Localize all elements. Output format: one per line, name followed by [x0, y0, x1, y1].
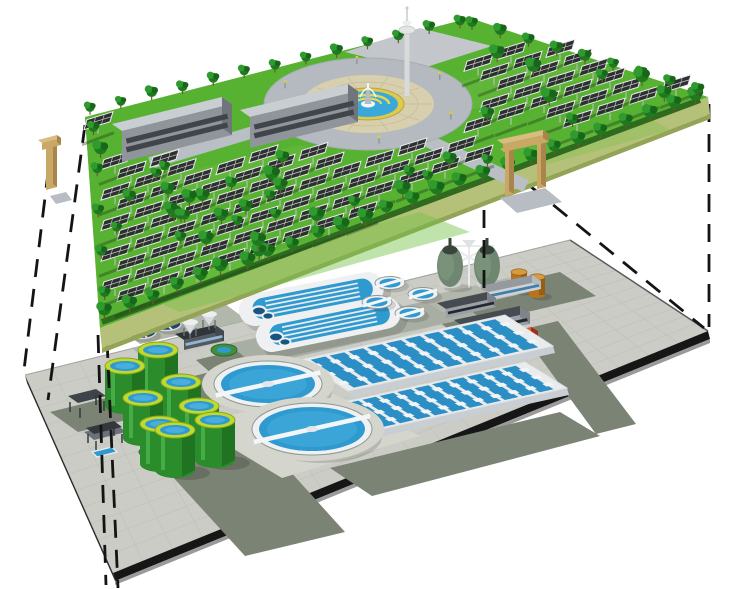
canopy-light — [522, 33, 529, 40]
highlight — [438, 250, 454, 280]
aerator — [263, 313, 274, 320]
canopy-light — [231, 215, 238, 222]
gate-lintel — [38, 135, 61, 150]
canopy-shade — [557, 42, 563, 48]
canopy-shade — [244, 66, 250, 72]
canopy-shade — [165, 162, 170, 167]
side-wall — [53, 140, 57, 187]
canopy-shade — [270, 191, 275, 196]
canopy-shade — [246, 201, 253, 208]
canopy-shade — [101, 142, 109, 150]
canopy-light — [121, 295, 130, 304]
canopy-light — [442, 151, 450, 159]
canopy-light — [92, 203, 99, 210]
canopy-shade — [101, 246, 107, 252]
canopy-light — [596, 69, 603, 76]
canopy-shade — [429, 22, 435, 28]
canopy-shade — [206, 232, 213, 239]
canopy-light — [111, 222, 117, 228]
canopy-shade — [121, 97, 126, 102]
tree — [145, 85, 158, 100]
canopy-shade — [306, 53, 311, 58]
canopy-shade — [642, 70, 650, 78]
canopy-light — [454, 15, 461, 22]
canopy-shade — [613, 59, 619, 65]
canopy-light — [489, 44, 498, 53]
canopy-light — [423, 20, 430, 27]
canopy-light — [607, 57, 614, 64]
canopy-light — [250, 231, 259, 240]
canopy-shade — [276, 209, 281, 214]
canopy-shade — [181, 232, 187, 238]
canopy-light — [96, 302, 105, 311]
scene-illustration — [0, 0, 740, 589]
canopy-light — [428, 180, 437, 189]
canopy-light — [550, 41, 558, 49]
canopy-light — [150, 167, 156, 173]
canopy-light — [238, 65, 245, 72]
canopy-light — [330, 43, 337, 50]
canopy-light — [691, 82, 699, 90]
hub — [306, 426, 318, 432]
water-glint — [171, 379, 191, 385]
canopy-light — [264, 189, 270, 195]
canopy-shade — [258, 233, 266, 241]
canopy-shade — [626, 115, 633, 122]
canopy-shade — [292, 238, 299, 245]
canopy-shade — [459, 174, 466, 181]
canopy-shade — [268, 245, 275, 252]
canopy-light — [159, 161, 165, 167]
canopy-light — [193, 267, 202, 276]
canopy-light — [348, 195, 355, 202]
hopper — [182, 319, 198, 338]
canopy-shade — [472, 18, 478, 24]
canopy-shade — [366, 210, 374, 218]
canopy-shade — [152, 87, 158, 93]
canopy-light — [160, 182, 168, 190]
water-glint — [165, 427, 185, 433]
canopy-light — [285, 237, 293, 245]
canopy-shade — [318, 227, 325, 234]
canopy-light — [95, 245, 102, 252]
tower-cap — [403, 21, 412, 26]
canopy-shade — [281, 179, 288, 186]
canopy-light — [198, 230, 207, 239]
canopy-shade — [183, 82, 189, 88]
canopy-shade — [130, 297, 137, 304]
canopy-shade — [90, 103, 96, 109]
water-glint — [148, 347, 168, 353]
canopy-light — [357, 208, 366, 217]
canopy-shade — [670, 76, 676, 82]
canopy-light — [480, 106, 488, 114]
stack — [449, 238, 452, 247]
lamp-head — [438, 71, 441, 74]
canopy-light — [176, 80, 183, 87]
gate-ramp — [50, 192, 72, 204]
canopy-shade — [554, 141, 561, 148]
canopy-shade — [232, 178, 238, 184]
canopy-light — [275, 150, 283, 158]
canopy-shade — [403, 182, 411, 190]
canopy-shade — [221, 209, 228, 216]
canopy-shade — [664, 87, 671, 94]
canopy-light — [541, 88, 550, 97]
canopy-shade — [201, 269, 208, 276]
canopy-shade — [185, 210, 191, 216]
canopy-light — [481, 154, 488, 161]
canopy-light — [87, 121, 94, 128]
canopy-shade — [600, 124, 607, 131]
canopy-shade — [94, 123, 100, 129]
canopy-shade — [602, 70, 608, 76]
canopy-shade — [237, 216, 242, 221]
canopy-shade — [698, 84, 704, 90]
canopy-light — [578, 49, 586, 57]
canopy-light — [525, 57, 534, 66]
stack — [486, 238, 489, 247]
canopy-shade — [275, 61, 281, 67]
canopy-light — [593, 123, 601, 131]
water-glint — [133, 395, 153, 401]
canopy-light — [633, 67, 643, 77]
canopy-light — [361, 36, 368, 43]
canopy-shade — [578, 132, 585, 139]
canopy-shade — [529, 34, 535, 40]
canopy-shade — [549, 90, 557, 98]
canopy-light — [309, 207, 318, 216]
canopy-shade — [189, 191, 196, 198]
canopy-light — [175, 231, 182, 238]
canopy-light — [169, 277, 177, 285]
tree — [115, 96, 126, 109]
canopy-shade — [203, 190, 210, 197]
top — [511, 269, 527, 275]
canopy-shade — [259, 245, 266, 252]
canopy-shade — [450, 153, 457, 160]
canopy-shade — [98, 205, 104, 211]
canopy-light — [239, 199, 247, 207]
canopy-shade — [368, 38, 374, 44]
canopy-shade — [156, 169, 161, 174]
canopy-shade — [488, 108, 495, 115]
canopy-shade — [317, 209, 325, 217]
canopy-shade — [342, 218, 350, 226]
canopy-light — [91, 162, 98, 169]
canopy-shade — [409, 167, 414, 172]
canopy-light — [451, 172, 460, 181]
side-wall — [541, 140, 546, 187]
lamp-head — [284, 80, 287, 83]
canopy-shade — [483, 167, 490, 174]
canopy-light — [178, 209, 185, 216]
canopy-shade — [460, 16, 466, 22]
canopy-light — [570, 130, 579, 139]
aerator — [280, 339, 291, 346]
canopy-light — [466, 16, 473, 23]
canopy-shade — [650, 106, 658, 114]
canopy-light — [115, 96, 121, 102]
canopy-shade — [585, 50, 592, 57]
canopy-light — [84, 101, 91, 108]
canopy-shade — [500, 25, 507, 32]
hub — [262, 381, 274, 387]
water-glint — [115, 363, 135, 369]
canopy-light — [300, 52, 307, 59]
canopy-shade — [573, 114, 579, 120]
canopy-light — [392, 30, 399, 37]
side-wall — [509, 147, 514, 194]
canopy-shade — [221, 259, 229, 267]
canopy-shade — [497, 46, 505, 54]
canopy-shade — [104, 304, 111, 311]
canopy-light — [98, 286, 105, 293]
tower-deck — [399, 26, 415, 34]
canopy-shade — [248, 253, 256, 261]
canopy-light — [164, 201, 172, 209]
water-glint — [189, 403, 209, 409]
canopy-shade — [533, 59, 541, 67]
canopy-light — [273, 177, 282, 186]
canopy-shade — [213, 73, 219, 79]
canopy-shade — [177, 279, 184, 286]
water-glint — [205, 417, 225, 423]
canopy-light — [145, 289, 153, 297]
canopy-shade — [354, 197, 360, 203]
canopy-shade — [674, 96, 681, 103]
canopy-shade — [283, 152, 290, 159]
tank-pad-water — [217, 347, 231, 353]
canopy-shade — [272, 167, 280, 175]
canopy-light — [122, 189, 130, 197]
canopy-light — [663, 74, 670, 81]
canopy-light — [207, 72, 214, 79]
canopy-light — [379, 200, 387, 208]
antenna-tip — [406, 7, 409, 10]
canopy-light — [619, 113, 627, 121]
canopy-light — [493, 23, 501, 31]
canopy-light — [475, 165, 483, 173]
canopy-light — [269, 59, 276, 66]
canopy-light — [225, 176, 232, 183]
canopy-light — [642, 104, 651, 113]
canopy-light — [394, 180, 403, 189]
canopy-light — [403, 166, 410, 173]
canopy-light — [212, 257, 221, 266]
canopy-shade — [437, 182, 445, 190]
canopy-shade — [171, 203, 178, 210]
canopy-shade — [386, 201, 393, 208]
canopy-light — [422, 170, 428, 176]
lamp-head — [378, 135, 381, 138]
canopy-shade — [129, 191, 135, 197]
canopy-shade — [487, 155, 493, 161]
canopy-light — [92, 140, 101, 149]
canopy-light — [181, 189, 190, 198]
canopy-shade — [412, 193, 419, 200]
side-gate — [38, 135, 72, 204]
canopy-light — [145, 85, 153, 93]
canopy-shade — [117, 223, 122, 228]
canopy-light — [239, 251, 248, 260]
lamp-head — [356, 56, 359, 59]
canopy-shade — [168, 183, 175, 190]
canopy-shade — [153, 290, 160, 297]
canopy-shade — [97, 164, 103, 170]
canopy-light — [333, 216, 342, 225]
canopy-light — [523, 148, 532, 157]
canopy-light — [214, 207, 223, 216]
canopy-light — [270, 208, 277, 215]
canopy-shade — [105, 288, 111, 294]
scene — [0, 0, 740, 589]
tree — [84, 101, 96, 114]
canopy-shade — [428, 172, 433, 177]
canopy-light — [566, 113, 573, 120]
canopy-light — [656, 85, 665, 94]
canopy-light — [263, 165, 273, 175]
canopy-light — [311, 225, 319, 233]
lamp-head — [449, 111, 452, 114]
canopy-shade — [337, 45, 343, 51]
